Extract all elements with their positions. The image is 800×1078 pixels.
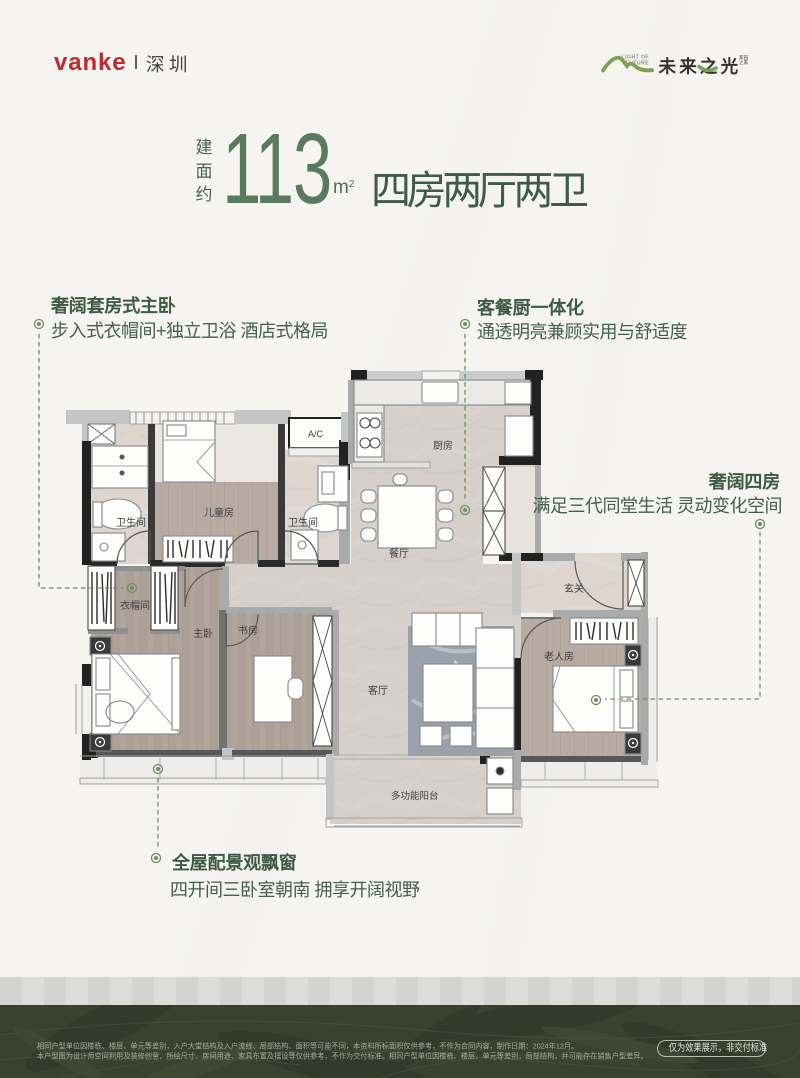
svg-text:卫生间: 卫生间	[116, 516, 146, 529]
svg-text:玄关: 玄关	[564, 582, 584, 595]
svg-text:卫生间: 卫生间	[288, 516, 318, 529]
svg-text:主卧: 主卧	[193, 627, 213, 640]
svg-text:客厅: 客厅	[368, 684, 388, 697]
svg-text:A/C: A/C	[308, 429, 324, 439]
svg-text:老人房: 老人房	[544, 650, 574, 663]
svg-text:书房: 书房	[238, 624, 258, 637]
svg-text:衣帽间: 衣帽间	[120, 599, 150, 612]
svg-text:厨房: 厨房	[433, 439, 453, 452]
svg-text:多功能阳台: 多功能阳台	[391, 790, 439, 802]
svg-text:儿童房: 儿童房	[204, 506, 234, 519]
svg-text:餐厅: 餐厅	[389, 547, 409, 560]
